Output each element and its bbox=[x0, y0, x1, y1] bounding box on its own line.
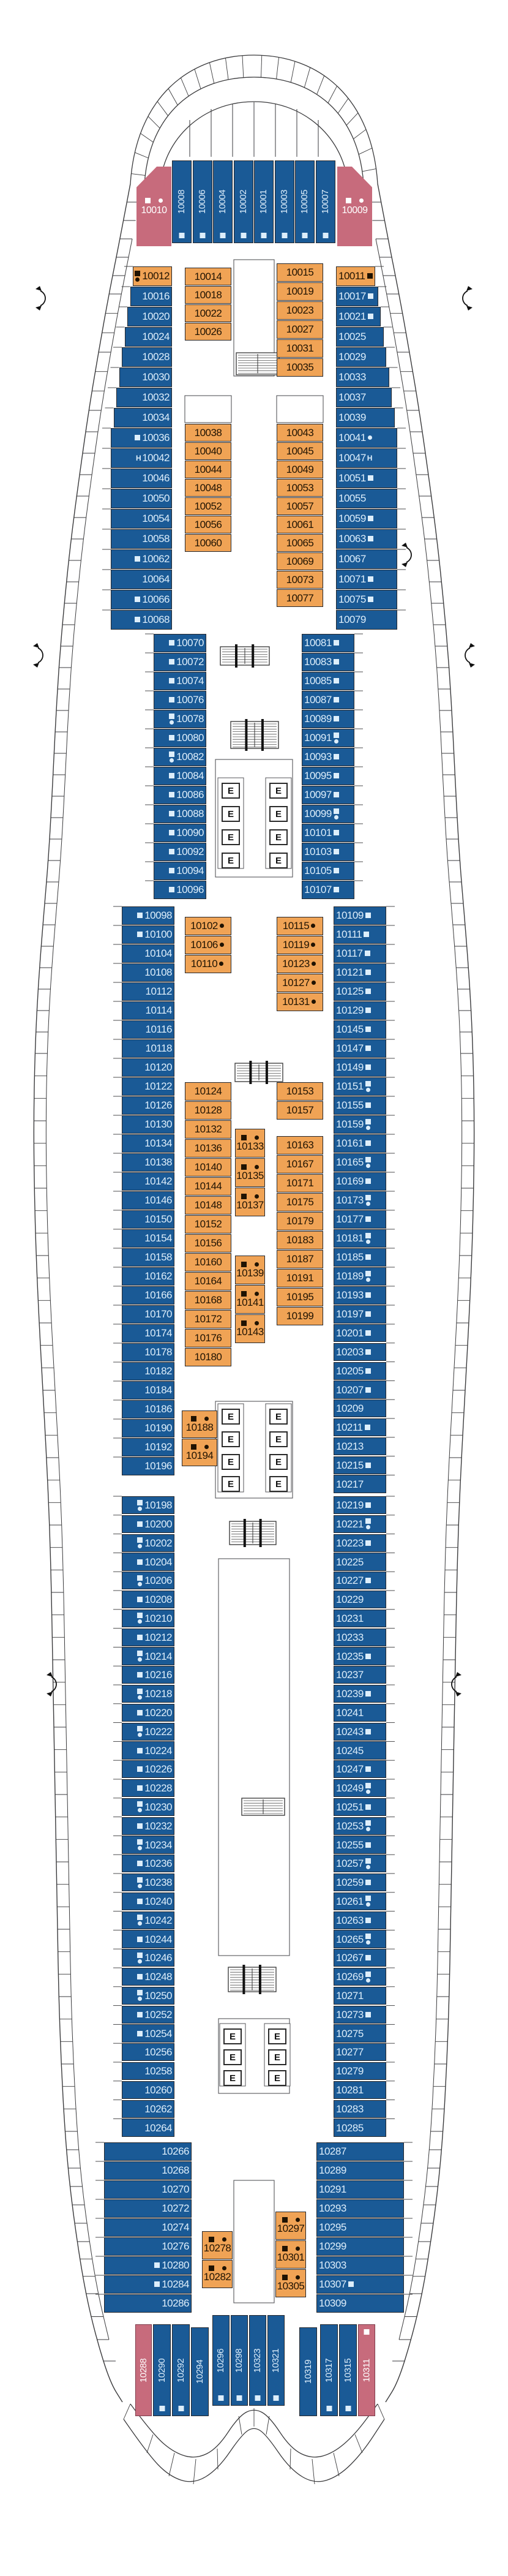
stairs-icon bbox=[228, 1965, 276, 1994]
cabin-number: 10188 bbox=[186, 1422, 214, 1433]
elevator-icon: E bbox=[222, 806, 240, 822]
cabin-10294: 10294 bbox=[191, 2327, 209, 2416]
cabin-10190: 10190 bbox=[122, 1419, 174, 1437]
cabin-number: 10236 bbox=[144, 1858, 172, 1869]
cabin-10073: 10073 bbox=[277, 571, 323, 589]
cabin-10238: 10238 bbox=[122, 1874, 174, 1891]
cabin-number: 10144 bbox=[195, 1181, 222, 1191]
sofa-bed-icon bbox=[169, 640, 174, 646]
cabin-number: 10133 bbox=[236, 1141, 264, 1151]
cabin-number: 10202 bbox=[144, 1538, 172, 1548]
cabin-10265: 10265 bbox=[334, 1930, 386, 1948]
cabin-10174: 10174 bbox=[122, 1324, 174, 1343]
cabin-10084: 10084 bbox=[154, 767, 206, 785]
cabin-10295: 10295 bbox=[316, 2218, 404, 2237]
cabin-number: 10117 bbox=[336, 948, 363, 958]
cabin-number: 10156 bbox=[195, 1238, 222, 1248]
deck-connection-arrow-icon bbox=[47, 1672, 56, 1697]
cabin-number: 10256 bbox=[144, 2047, 172, 2057]
cabin-10160: 10160 bbox=[185, 1253, 231, 1271]
cabin-number: 10023 bbox=[286, 305, 314, 315]
cabin-number: 10162 bbox=[144, 1271, 172, 1281]
cabin-10269: 10269 bbox=[334, 1968, 386, 1986]
third-berth-icon bbox=[311, 943, 315, 947]
cabin-number: 10279 bbox=[336, 2066, 364, 2076]
cabin-number: 10305 bbox=[277, 2281, 305, 2291]
cabin-10135: 10135 bbox=[235, 1158, 265, 1187]
cabin-number: 10082 bbox=[176, 751, 204, 762]
cabin-10263: 10263 bbox=[334, 1911, 386, 1929]
sofa-bed-icon bbox=[154, 2281, 160, 2287]
cabin-number: 10125 bbox=[336, 986, 364, 996]
cabin-number: 10098 bbox=[144, 910, 172, 921]
cabin-10007: 10007 bbox=[316, 160, 335, 243]
cabin-10027: 10027 bbox=[277, 320, 323, 339]
cabin-10046: 10046 bbox=[111, 469, 172, 488]
cabin-number: 10263 bbox=[336, 1915, 364, 1926]
sofa-bed-berth-icon bbox=[334, 808, 339, 820]
cabin-number: 10020 bbox=[142, 311, 170, 322]
cabin-number: 10321 bbox=[272, 2348, 281, 2372]
cabin-number: 10128 bbox=[195, 1105, 222, 1115]
cabin-number: 10074 bbox=[176, 676, 204, 686]
sofa-bed-icon bbox=[334, 640, 339, 646]
cabin-10176: 10176 bbox=[185, 1329, 231, 1347]
cabin-10179: 10179 bbox=[277, 1212, 323, 1230]
cabin-number: 10019 bbox=[286, 286, 314, 296]
cabin-10104: 10104 bbox=[122, 944, 174, 963]
cabin-number: 10253 bbox=[336, 1821, 364, 1831]
sofa-bed-icon bbox=[365, 1729, 371, 1734]
cabin-number: 10239 bbox=[336, 1689, 364, 1699]
cabin-number: 10212 bbox=[144, 1632, 172, 1643]
cabin-number: 10177 bbox=[336, 1214, 364, 1224]
cabin-10251: 10251 bbox=[334, 1798, 386, 1816]
cabin-10205: 10205 bbox=[334, 1362, 386, 1380]
sofa-bed-berth-icon bbox=[137, 1650, 143, 1662]
elevator-icon: E bbox=[222, 1476, 240, 1492]
cabin-number: 10193 bbox=[336, 1290, 364, 1300]
cabin-10164: 10164 bbox=[185, 1272, 231, 1290]
sofa-bed-icon bbox=[365, 1955, 371, 1960]
cabin-number: 10217 bbox=[336, 1479, 364, 1489]
cabin-10018: 10018 bbox=[185, 286, 231, 304]
cabin-number: 10167 bbox=[286, 1159, 314, 1169]
cabin-number: 10159 bbox=[336, 1119, 364, 1129]
cabin-10079: 10079 bbox=[336, 610, 397, 630]
cabin-10126: 10126 bbox=[122, 1096, 174, 1115]
cabin-number: 10055 bbox=[338, 493, 366, 503]
cabin-10026: 10026 bbox=[185, 323, 231, 341]
cabin-10042: H10042 bbox=[111, 448, 172, 468]
cabin-10012: 10012 bbox=[133, 266, 172, 286]
cabin-10183: 10183 bbox=[277, 1231, 323, 1249]
cabin-number: 10266 bbox=[162, 2146, 189, 2156]
cabin-number: 10228 bbox=[144, 1783, 172, 1793]
sofa-bed-icon bbox=[365, 1387, 371, 1393]
cabin-number: 10097 bbox=[304, 789, 332, 800]
cabin-10279: 10279 bbox=[334, 2062, 386, 2080]
sofa-bed-berth-icon bbox=[239, 1135, 261, 1140]
cabin-number: 10052 bbox=[195, 501, 222, 511]
cabin-number: 10172 bbox=[195, 1314, 222, 1324]
cabin-number: 10126 bbox=[144, 1100, 172, 1110]
cabin-number: 10091 bbox=[304, 733, 332, 743]
accessible-cabin-icon: H bbox=[136, 454, 141, 462]
sofa-bed-berth-icon bbox=[280, 2217, 302, 2223]
cabin-10281: 10281 bbox=[334, 2081, 386, 2099]
cabin-10211: 10211 bbox=[334, 1418, 386, 1436]
cabin-number: 10083 bbox=[304, 657, 332, 667]
cabin-10199: 10199 bbox=[277, 1307, 323, 1325]
cabin-number: 10226 bbox=[144, 1764, 172, 1774]
cabin-number: 10108 bbox=[144, 967, 172, 977]
sofa-bed-icon bbox=[219, 2395, 224, 2401]
cabin-number: 10206 bbox=[144, 1575, 172, 1586]
cabin-10105: 10105 bbox=[302, 862, 354, 880]
cabin-number: 10121 bbox=[336, 967, 364, 977]
cabin-number: 10223 bbox=[336, 1538, 364, 1548]
cabin-number: 10294 bbox=[195, 2360, 204, 2384]
cabin-10228: 10228 bbox=[122, 1779, 174, 1797]
cabin-10276: 10276 bbox=[104, 2237, 192, 2256]
sofa-bed-berth-icon bbox=[280, 2246, 302, 2251]
cabin-10229: 10229 bbox=[334, 1591, 386, 1608]
cabin-10239: 10239 bbox=[334, 1685, 386, 1703]
sofa-bed-berth-icon bbox=[137, 1499, 143, 1512]
cabin-number: 10004 bbox=[219, 190, 228, 214]
cabin-number: 10237 bbox=[336, 1670, 364, 1680]
cabin-number: 10323 bbox=[253, 2348, 263, 2372]
cabin-number: 10089 bbox=[304, 714, 332, 724]
sofa-bed-berth-icon bbox=[137, 1952, 143, 1964]
cabin-number: 10054 bbox=[142, 513, 170, 524]
sofa-bed-icon bbox=[326, 2406, 332, 2411]
sofa-bed-icon bbox=[365, 1026, 371, 1032]
cabin-10040: 10040 bbox=[185, 442, 231, 460]
sofa-bed-icon bbox=[137, 1785, 143, 1791]
cabin-number: 10231 bbox=[336, 1613, 364, 1624]
cabin-number: 10258 bbox=[144, 2066, 172, 2076]
sofa-bed-icon bbox=[334, 773, 339, 778]
cabin-number: 10035 bbox=[286, 362, 314, 372]
cabin-number: 10271 bbox=[336, 1990, 364, 2001]
sofa-bed-icon bbox=[137, 1823, 143, 1829]
sofa-bed-berth-icon bbox=[137, 1839, 143, 1851]
cabin-10065: 10065 bbox=[277, 534, 323, 552]
cabin-10128: 10128 bbox=[185, 1101, 231, 1120]
cabin-10066: 10066 bbox=[111, 590, 172, 609]
cabin-10115: 10115 bbox=[277, 917, 323, 935]
cabin-number: 10246 bbox=[144, 1953, 172, 1963]
cabin-10131: 10131 bbox=[277, 993, 323, 1011]
cabin-10086: 10086 bbox=[154, 786, 206, 804]
sofa-bed-berth-icon bbox=[239, 1194, 261, 1199]
cabin-number: 10017 bbox=[338, 291, 366, 301]
cabin-10124: 10124 bbox=[185, 1082, 231, 1101]
cabin-10222: 10222 bbox=[122, 1723, 174, 1741]
cabin-10130: 10130 bbox=[122, 1115, 174, 1134]
cabin-number: 10174 bbox=[144, 1328, 172, 1338]
sofa-bed-icon bbox=[365, 1311, 371, 1317]
cabin-number: 10006 bbox=[198, 190, 207, 214]
cabin-number: 10099 bbox=[304, 808, 332, 819]
sofa-bed-icon bbox=[137, 2012, 143, 2017]
cabin-number: 10287 bbox=[319, 2146, 346, 2156]
cabin-10264: 10264 bbox=[122, 2118, 174, 2136]
cabin-number: 10201 bbox=[336, 1328, 364, 1338]
cabin-10184: 10184 bbox=[122, 1381, 174, 1399]
cabin-10077: 10077 bbox=[277, 589, 323, 607]
cabin-10162: 10162 bbox=[122, 1267, 174, 1286]
cabin-number: 10131 bbox=[282, 996, 310, 1007]
cabin-number: 10154 bbox=[144, 1233, 172, 1243]
cabin-10220: 10220 bbox=[122, 1704, 174, 1722]
cabin-number: 10014 bbox=[195, 271, 222, 282]
sofa-bed-icon bbox=[137, 1766, 143, 1772]
cabin-10261: 10261 bbox=[334, 1892, 386, 1910]
cabin-number: 10002 bbox=[239, 190, 248, 214]
cabin-number: 10270 bbox=[162, 2184, 189, 2194]
cabin-10075: 10075 bbox=[336, 590, 397, 609]
cabin-number: 10069 bbox=[286, 556, 314, 567]
cabin-10262: 10262 bbox=[122, 2100, 174, 2118]
cabin-10286: 10286 bbox=[104, 2294, 192, 2313]
cabin-10051: 10051 bbox=[336, 469, 397, 488]
cabin-number: 10176 bbox=[195, 1333, 222, 1343]
cabin-10249: 10249 bbox=[334, 1779, 386, 1797]
sofa-bed-icon bbox=[137, 913, 143, 918]
cabin-10072: 10072 bbox=[154, 653, 206, 671]
cabin-10242: 10242 bbox=[122, 1911, 174, 1929]
cabin-number: 10068 bbox=[142, 614, 170, 625]
cabin-10003: 10003 bbox=[275, 160, 294, 243]
cabin-10287: 10287 bbox=[316, 2142, 404, 2161]
cabin-number: 10088 bbox=[176, 808, 204, 819]
cabin-number: 10028 bbox=[142, 352, 170, 362]
cabin-10290: 10290 bbox=[153, 2324, 171, 2416]
elevator-icon: E bbox=[269, 1454, 288, 1470]
cabin-10139: 10139 bbox=[235, 1256, 265, 1284]
sofa-bed-berth-icon bbox=[189, 1444, 211, 1450]
cabin-10071: 10071 bbox=[336, 570, 397, 589]
cabin-10254: 10254 bbox=[122, 2024, 174, 2042]
cabin-10155: 10155 bbox=[334, 1096, 386, 1115]
cabin-number: 10027 bbox=[286, 324, 314, 334]
cabin-number: 10158 bbox=[144, 1252, 172, 1262]
stairs-icon bbox=[235, 1061, 283, 1084]
sofa-bed-berth-icon bbox=[137, 1801, 143, 1813]
stairs-icon bbox=[242, 1798, 285, 1815]
cabin-number: 10283 bbox=[336, 2104, 364, 2114]
cabin-number: 10024 bbox=[142, 331, 170, 342]
cabin-number: 10235 bbox=[336, 1651, 364, 1662]
cabin-10169: 10169 bbox=[334, 1172, 386, 1191]
cabin-10147: 10147 bbox=[334, 1039, 386, 1058]
cabin-10014: 10014 bbox=[185, 268, 231, 285]
sofa-bed-icon bbox=[169, 773, 174, 778]
cabin-number: 10116 bbox=[145, 1024, 172, 1034]
cabin-number: 10094 bbox=[176, 865, 204, 876]
cabin-number: 10254 bbox=[144, 2028, 172, 2039]
cabin-10323: 10323 bbox=[249, 2315, 266, 2406]
sofa-bed-berth-icon bbox=[143, 198, 165, 203]
cabin-10114: 10114 bbox=[122, 1001, 174, 1020]
cabin-10197: 10197 bbox=[334, 1305, 386, 1324]
sofa-bed-icon bbox=[368, 475, 373, 481]
third-berth-icon bbox=[312, 1000, 316, 1004]
cabin-number: 10205 bbox=[336, 1366, 364, 1376]
cabin-number: 10241 bbox=[336, 1708, 364, 1718]
cabin-number: 10057 bbox=[286, 501, 314, 511]
cabin-10032: 10032 bbox=[116, 388, 172, 407]
deck-connection-arrow-icon bbox=[402, 543, 411, 567]
cabin-10240: 10240 bbox=[122, 1892, 174, 1910]
cabin-number: 10240 bbox=[144, 1896, 172, 1907]
cabin-10064: 10064 bbox=[111, 570, 172, 589]
sofa-bed-icon bbox=[368, 536, 373, 541]
accessible-cabin-icon: H bbox=[367, 454, 372, 462]
cabin-number: 10129 bbox=[336, 1005, 364, 1015]
sofa-bed-icon bbox=[334, 830, 339, 835]
third-berth-icon bbox=[311, 924, 315, 928]
cabin-10250: 10250 bbox=[122, 1987, 174, 2005]
cabin-10167: 10167 bbox=[277, 1155, 323, 1173]
cabin-10110: 10110 bbox=[185, 955, 231, 973]
cabin-10175: 10175 bbox=[277, 1193, 323, 1211]
stairs-icon bbox=[231, 719, 278, 751]
cabin-10298: 10298 bbox=[231, 2315, 248, 2406]
cabin-10277: 10277 bbox=[334, 2043, 386, 2061]
sofa-bed-berth-icon bbox=[365, 1858, 371, 1870]
cabin-10189: 10189 bbox=[334, 1267, 386, 1286]
cabin-10201: 10201 bbox=[334, 1324, 386, 1342]
cabin-10036: 10036 bbox=[111, 428, 172, 448]
cabin-10050: 10050 bbox=[111, 489, 172, 508]
cabin-number: 10087 bbox=[304, 695, 332, 705]
cabin-10288: 10288 bbox=[135, 2324, 152, 2416]
cabin-10280: 10280 bbox=[104, 2256, 192, 2275]
cabin-number: 10076 bbox=[176, 695, 204, 705]
cabin-number: 10250 bbox=[144, 1990, 172, 2001]
cabin-number: 10053 bbox=[286, 483, 314, 493]
cabin-10041: 10041 bbox=[336, 428, 397, 448]
elevator-icon: E bbox=[269, 783, 288, 799]
cabin-number: 10005 bbox=[301, 190, 310, 214]
cabin-number: 10251 bbox=[336, 1802, 364, 1812]
cabin-10270: 10270 bbox=[104, 2180, 192, 2199]
cabin-number: 10262 bbox=[144, 2104, 172, 2114]
cabin-number: 10042 bbox=[142, 453, 170, 463]
cabin-10283: 10283 bbox=[334, 2100, 386, 2118]
cabin-10204: 10204 bbox=[122, 1553, 174, 1570]
stairs-icon bbox=[230, 1519, 276, 1547]
cabin-10188: 10188 bbox=[182, 1410, 217, 1438]
sofa-bed-icon bbox=[135, 597, 140, 602]
cabin-10030: 10030 bbox=[119, 367, 173, 387]
cabin-number: 10049 bbox=[286, 464, 314, 475]
cabin-10123: 10123 bbox=[277, 955, 323, 973]
cabin-10029: 10029 bbox=[336, 347, 386, 367]
sofa-bed-icon bbox=[220, 233, 226, 238]
cabin-10223: 10223 bbox=[334, 1534, 386, 1552]
cabin-10133: 10133 bbox=[235, 1129, 265, 1158]
sofa-bed-icon bbox=[137, 1974, 143, 1979]
cabin-10144: 10144 bbox=[185, 1177, 231, 1196]
cabin-10212: 10212 bbox=[122, 1629, 174, 1646]
cabin-number: 10274 bbox=[162, 2222, 189, 2232]
sofa-bed-icon bbox=[364, 2329, 370, 2335]
sofa-bed-icon bbox=[334, 792, 339, 797]
third-berth-icon bbox=[219, 962, 223, 966]
cabin-number: 10038 bbox=[195, 427, 222, 438]
cabin-number: 10029 bbox=[338, 352, 366, 362]
cabin-10100: 10100 bbox=[122, 925, 174, 944]
cabin-10317: 10317 bbox=[320, 2324, 338, 2416]
sofa-bed-icon bbox=[365, 1064, 371, 1070]
sofa-bed-icon bbox=[365, 970, 371, 975]
deck-plan: 1001210016100201002410028100301003210034… bbox=[0, 0, 508, 2576]
cabin-number: 10009 bbox=[342, 206, 368, 216]
sofa-bed-icon bbox=[368, 597, 373, 602]
sofa-bed-icon bbox=[365, 1804, 371, 1810]
sofa-bed-icon bbox=[137, 1748, 143, 1753]
sofa-bed-icon bbox=[137, 932, 143, 937]
cabin-10033: 10033 bbox=[336, 367, 389, 387]
cabin-number: 10100 bbox=[144, 929, 172, 940]
cabin-10048: 10048 bbox=[185, 479, 231, 497]
cabin-10129: 10129 bbox=[334, 1001, 386, 1020]
cabin-number: 10293 bbox=[319, 2203, 346, 2213]
cabin-number: 10037 bbox=[338, 392, 366, 402]
cabin-10236: 10236 bbox=[122, 1855, 174, 1872]
cabin-number: 10071 bbox=[338, 574, 366, 584]
cabin-number: 10213 bbox=[336, 1441, 364, 1452]
cabin-10272: 10272 bbox=[104, 2199, 192, 2218]
cabin-10121: 10121 bbox=[334, 963, 386, 982]
elevator-icon: E bbox=[269, 1476, 288, 1492]
sofa-bed-berth-icon bbox=[365, 1156, 371, 1169]
cabin-number: 10107 bbox=[304, 884, 332, 895]
cabin-10219: 10219 bbox=[334, 1496, 386, 1514]
sofa-bed-berth-icon bbox=[280, 2275, 302, 2280]
cabin-10227: 10227 bbox=[334, 1572, 386, 1589]
cabin-10043: 10043 bbox=[277, 424, 323, 442]
cabin-10161: 10161 bbox=[334, 1134, 386, 1153]
cabin-10247: 10247 bbox=[334, 1760, 386, 1778]
cabin-number: 10221 bbox=[336, 1519, 364, 1529]
cabin-number: 10081 bbox=[304, 638, 332, 648]
sofa-bed-icon bbox=[365, 1140, 371, 1146]
cabin-10256: 10256 bbox=[122, 2043, 174, 2061]
sofa-bed-icon bbox=[169, 678, 174, 684]
cabin-number: 10268 bbox=[162, 2165, 189, 2175]
cabin-10125: 10125 bbox=[334, 982, 386, 1001]
cabin-number: 10152 bbox=[195, 1219, 222, 1229]
cabin-number: 10147 bbox=[336, 1043, 364, 1053]
cabin-10146: 10146 bbox=[122, 1191, 174, 1210]
sofa-bed-icon bbox=[365, 1766, 371, 1772]
cabin-10253: 10253 bbox=[334, 1817, 386, 1835]
sofa-bed-berth-icon bbox=[189, 1416, 211, 1422]
cabin-10307: 10307 bbox=[316, 2275, 404, 2294]
cabin-number: 10025 bbox=[338, 331, 366, 342]
cabin-10232: 10232 bbox=[122, 1817, 174, 1835]
cabin-number: 10032 bbox=[142, 392, 170, 402]
cabin-number: 10299 bbox=[319, 2241, 346, 2251]
sofa-bed-icon bbox=[169, 811, 174, 816]
cabin-number: 10168 bbox=[195, 1295, 222, 1305]
